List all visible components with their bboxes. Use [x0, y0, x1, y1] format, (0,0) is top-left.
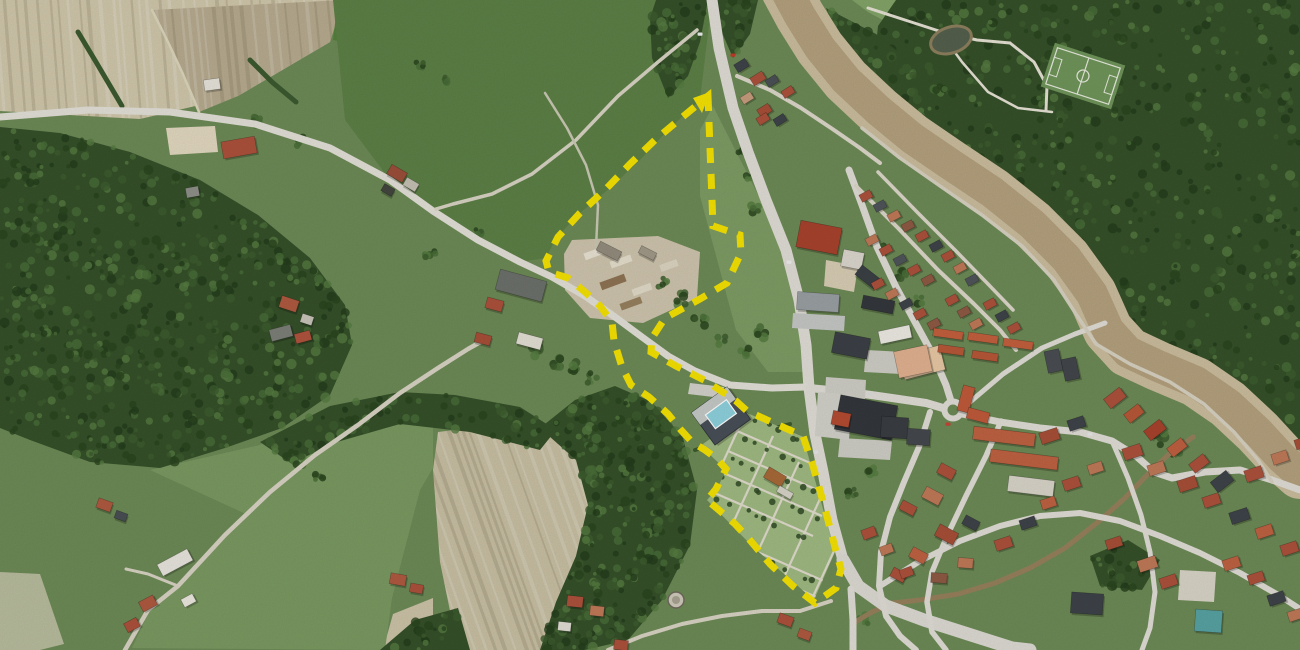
aerial-map-view	[0, 0, 1300, 650]
aerial-map-svg	[0, 0, 1300, 650]
photo-grain	[0, 0, 1300, 650]
